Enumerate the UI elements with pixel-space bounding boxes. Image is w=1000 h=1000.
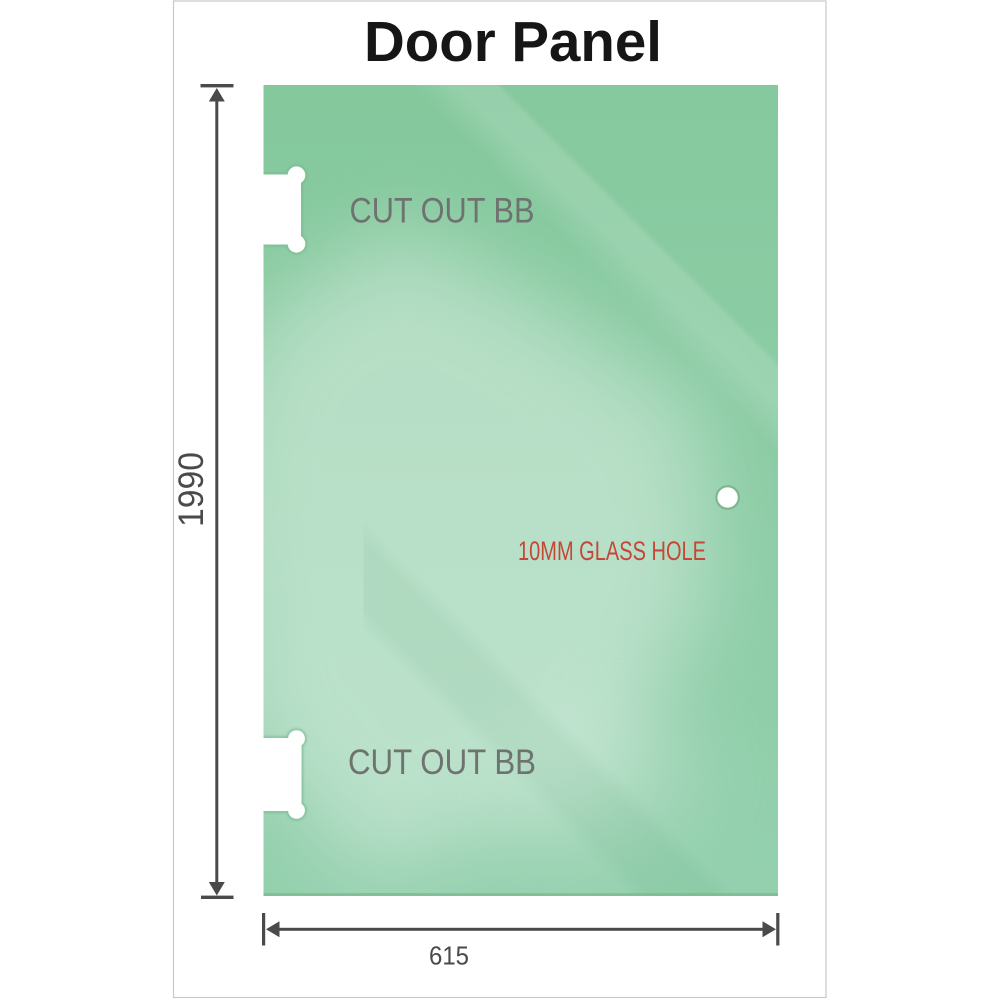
svg-text:CUT OUT BB: CUT OUT BB [350,192,535,231]
svg-text:CUT OUT BB: CUT OUT BB [348,743,536,782]
svg-text:615: 615 [429,941,469,971]
svg-text:10MM GLASS HOLE: 10MM GLASS HOLE [518,536,706,566]
svg-text:1990: 1990 [172,452,211,527]
svg-text:Door Panel: Door Panel [364,10,662,73]
